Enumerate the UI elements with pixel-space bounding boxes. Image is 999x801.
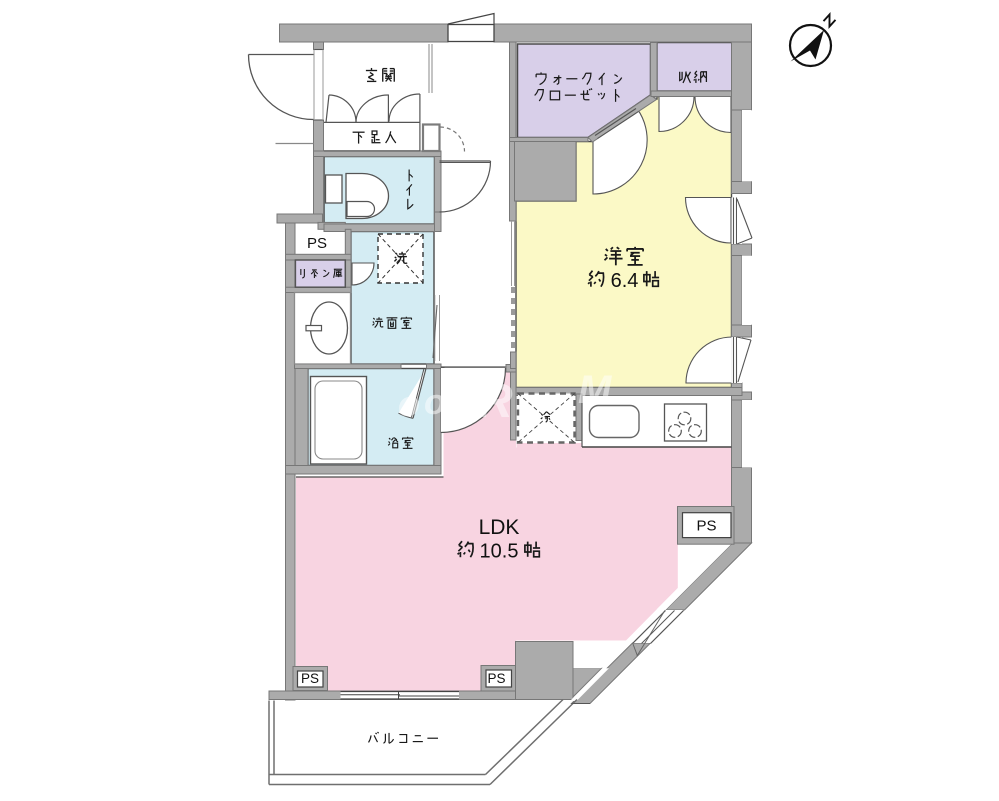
svg-text:M: M <box>578 368 613 412</box>
svg-text:R: R <box>478 375 513 428</box>
svg-text:PS: PS <box>301 671 319 686</box>
svg-text:o: o <box>450 379 472 420</box>
svg-text:o: o <box>424 381 446 422</box>
svg-text:6.4: 6.4 <box>611 270 639 292</box>
svg-text:PS: PS <box>487 671 505 686</box>
svg-text:PS: PS <box>307 235 327 252</box>
svg-text:o: o <box>398 383 420 424</box>
svg-text:10.5: 10.5 <box>480 541 519 563</box>
svg-text:PS: PS <box>696 518 716 535</box>
svg-text:LDK: LDK <box>479 516 520 539</box>
